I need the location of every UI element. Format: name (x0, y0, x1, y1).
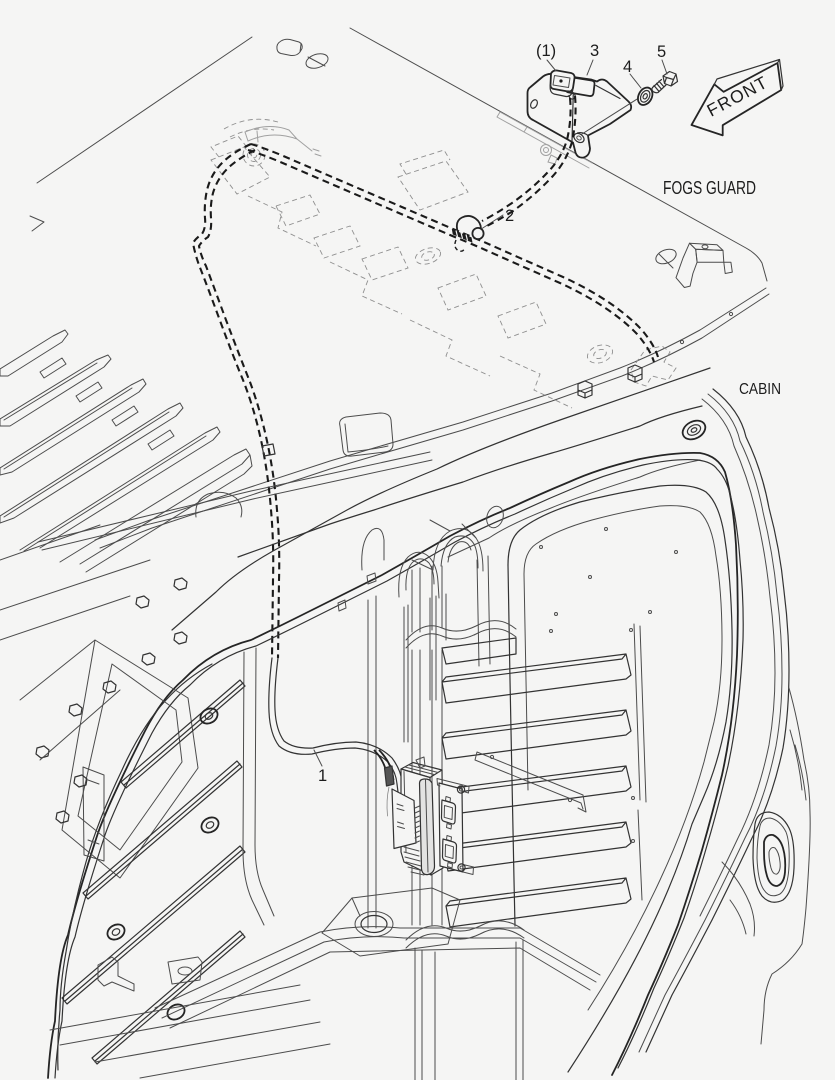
svg-text:5: 5 (657, 43, 666, 61)
svg-text:1: 1 (318, 767, 327, 785)
svg-text:(1): (1) (536, 42, 556, 60)
svg-text:2: 2 (505, 207, 514, 225)
svg-text:3: 3 (590, 42, 599, 60)
svg-text:CABIN: CABIN (739, 381, 781, 398)
svg-text:FOGS GUARD: FOGS GUARD (663, 178, 756, 198)
svg-text:4: 4 (623, 58, 632, 76)
